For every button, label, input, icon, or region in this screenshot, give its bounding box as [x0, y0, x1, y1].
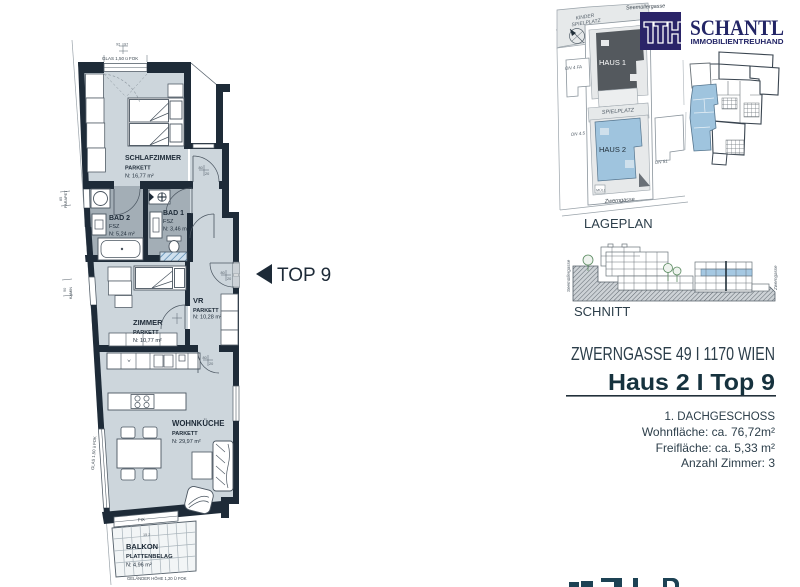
svg-text:FSZ: FSZ — [163, 219, 174, 225]
svg-text:TOP 9: TOP 9 — [277, 265, 331, 286]
svg-text:PARKETT: PARKETT — [172, 431, 198, 437]
svg-text:20: 20 — [205, 172, 209, 176]
svg-text:N: 16,77 m²: N: 16,77 m² — [125, 174, 154, 180]
svg-text:15 2: 15 2 — [143, 533, 150, 537]
svg-text:KAMIN: KAMIN — [69, 287, 73, 299]
svg-text:PARKETT: PARKETT — [125, 166, 151, 172]
svg-text:Haus 2 I Top 9: Haus 2 I Top 9 — [608, 369, 775, 395]
svg-text:BAD 2: BAD 2 — [109, 215, 130, 222]
svg-text:80: 80 — [221, 271, 225, 275]
svg-text:IMMOBILIENTREUHAND: IMMOBILIENTREUHAND — [691, 39, 784, 46]
svg-text:BALKON: BALKON — [126, 542, 158, 551]
svg-text:SCHNITT: SCHNITT — [574, 304, 630, 319]
svg-text:PLATTENBELAG: PLATTENBELAG — [126, 554, 173, 560]
svg-text:Zwerngasse: Zwerngasse — [773, 265, 778, 291]
svg-text:92: 92 — [116, 43, 120, 47]
svg-text:ZIMMER: ZIMMER — [133, 318, 163, 327]
svg-text:ZWERNGASSE 49 I 1170 WIEN: ZWERNGASSE 49 I 1170 WIEN — [571, 343, 775, 364]
svg-text:80: 80 — [203, 356, 207, 360]
svg-text:20: 20 — [227, 277, 231, 281]
svg-text:MÜLL: MÜLL — [596, 189, 606, 193]
svg-text:LAGEPLAN: LAGEPLAN — [584, 216, 653, 231]
svg-text:N: 3,46 m²: N: 3,46 m² — [163, 227, 189, 233]
svg-text:N: 4,96 m²: N: 4,96 m² — [126, 563, 152, 569]
svg-text:97: 97 — [124, 43, 128, 47]
svg-text:WOHNKÜCHE: WOHNKÜCHE — [172, 419, 224, 428]
svg-text:1. DACHGESCHOSS: 1. DACHGESCHOSS — [664, 411, 775, 423]
svg-text:N: 29,97 m²: N: 29,97 m² — [172, 439, 201, 445]
svg-text:Freifläche: ca. 5,33 m²: Freifläche: ca. 5,33 m² — [656, 441, 775, 455]
svg-text:GELÄNDER HÖHE 1,20 Ü FOK: GELÄNDER HÖHE 1,20 Ü FOK — [127, 576, 187, 581]
svg-text:VR: VR — [193, 296, 204, 305]
svg-text:N: 5,24 m²: N: 5,24 m² — [109, 232, 135, 238]
svg-text:20: 20 — [209, 362, 213, 366]
svg-text:HAUS 1: HAUS 1 — [599, 58, 626, 67]
svg-text:Anzahl Zimmer: 3: Anzahl Zimmer: 3 — [681, 456, 775, 470]
svg-text:GLAS 1,50 ü FOK: GLAS 1,50 ü FOK — [102, 56, 138, 61]
svg-text:FSZ: FSZ — [109, 224, 120, 230]
svg-text:PARKETT: PARKETT — [133, 330, 159, 336]
svg-text:N: 10,77 m²: N: 10,77 m² — [133, 338, 162, 344]
svg-text:SCHANTL: SCHANTL — [690, 15, 784, 40]
svg-text:N: 10,28 m²: N: 10,28 m² — [193, 315, 222, 321]
svg-text:FIX: FIX — [138, 517, 145, 523]
svg-text:SCHLAFZIMMER: SCHLAFZIMMER — [125, 155, 181, 162]
svg-text:90: 90 — [63, 288, 67, 292]
svg-text:Wohnfläche: ca. 76,72m²: Wohnfläche: ca. 76,72m² — [642, 425, 775, 439]
svg-text:85: 85 — [59, 197, 63, 201]
svg-text:HAUS 2: HAUS 2 — [599, 145, 626, 154]
svg-text:80: 80 — [199, 166, 203, 170]
svg-text:PARKETT: PARKETT — [193, 308, 219, 314]
svg-text:Seemüllergasse: Seemüllergasse — [566, 259, 571, 292]
